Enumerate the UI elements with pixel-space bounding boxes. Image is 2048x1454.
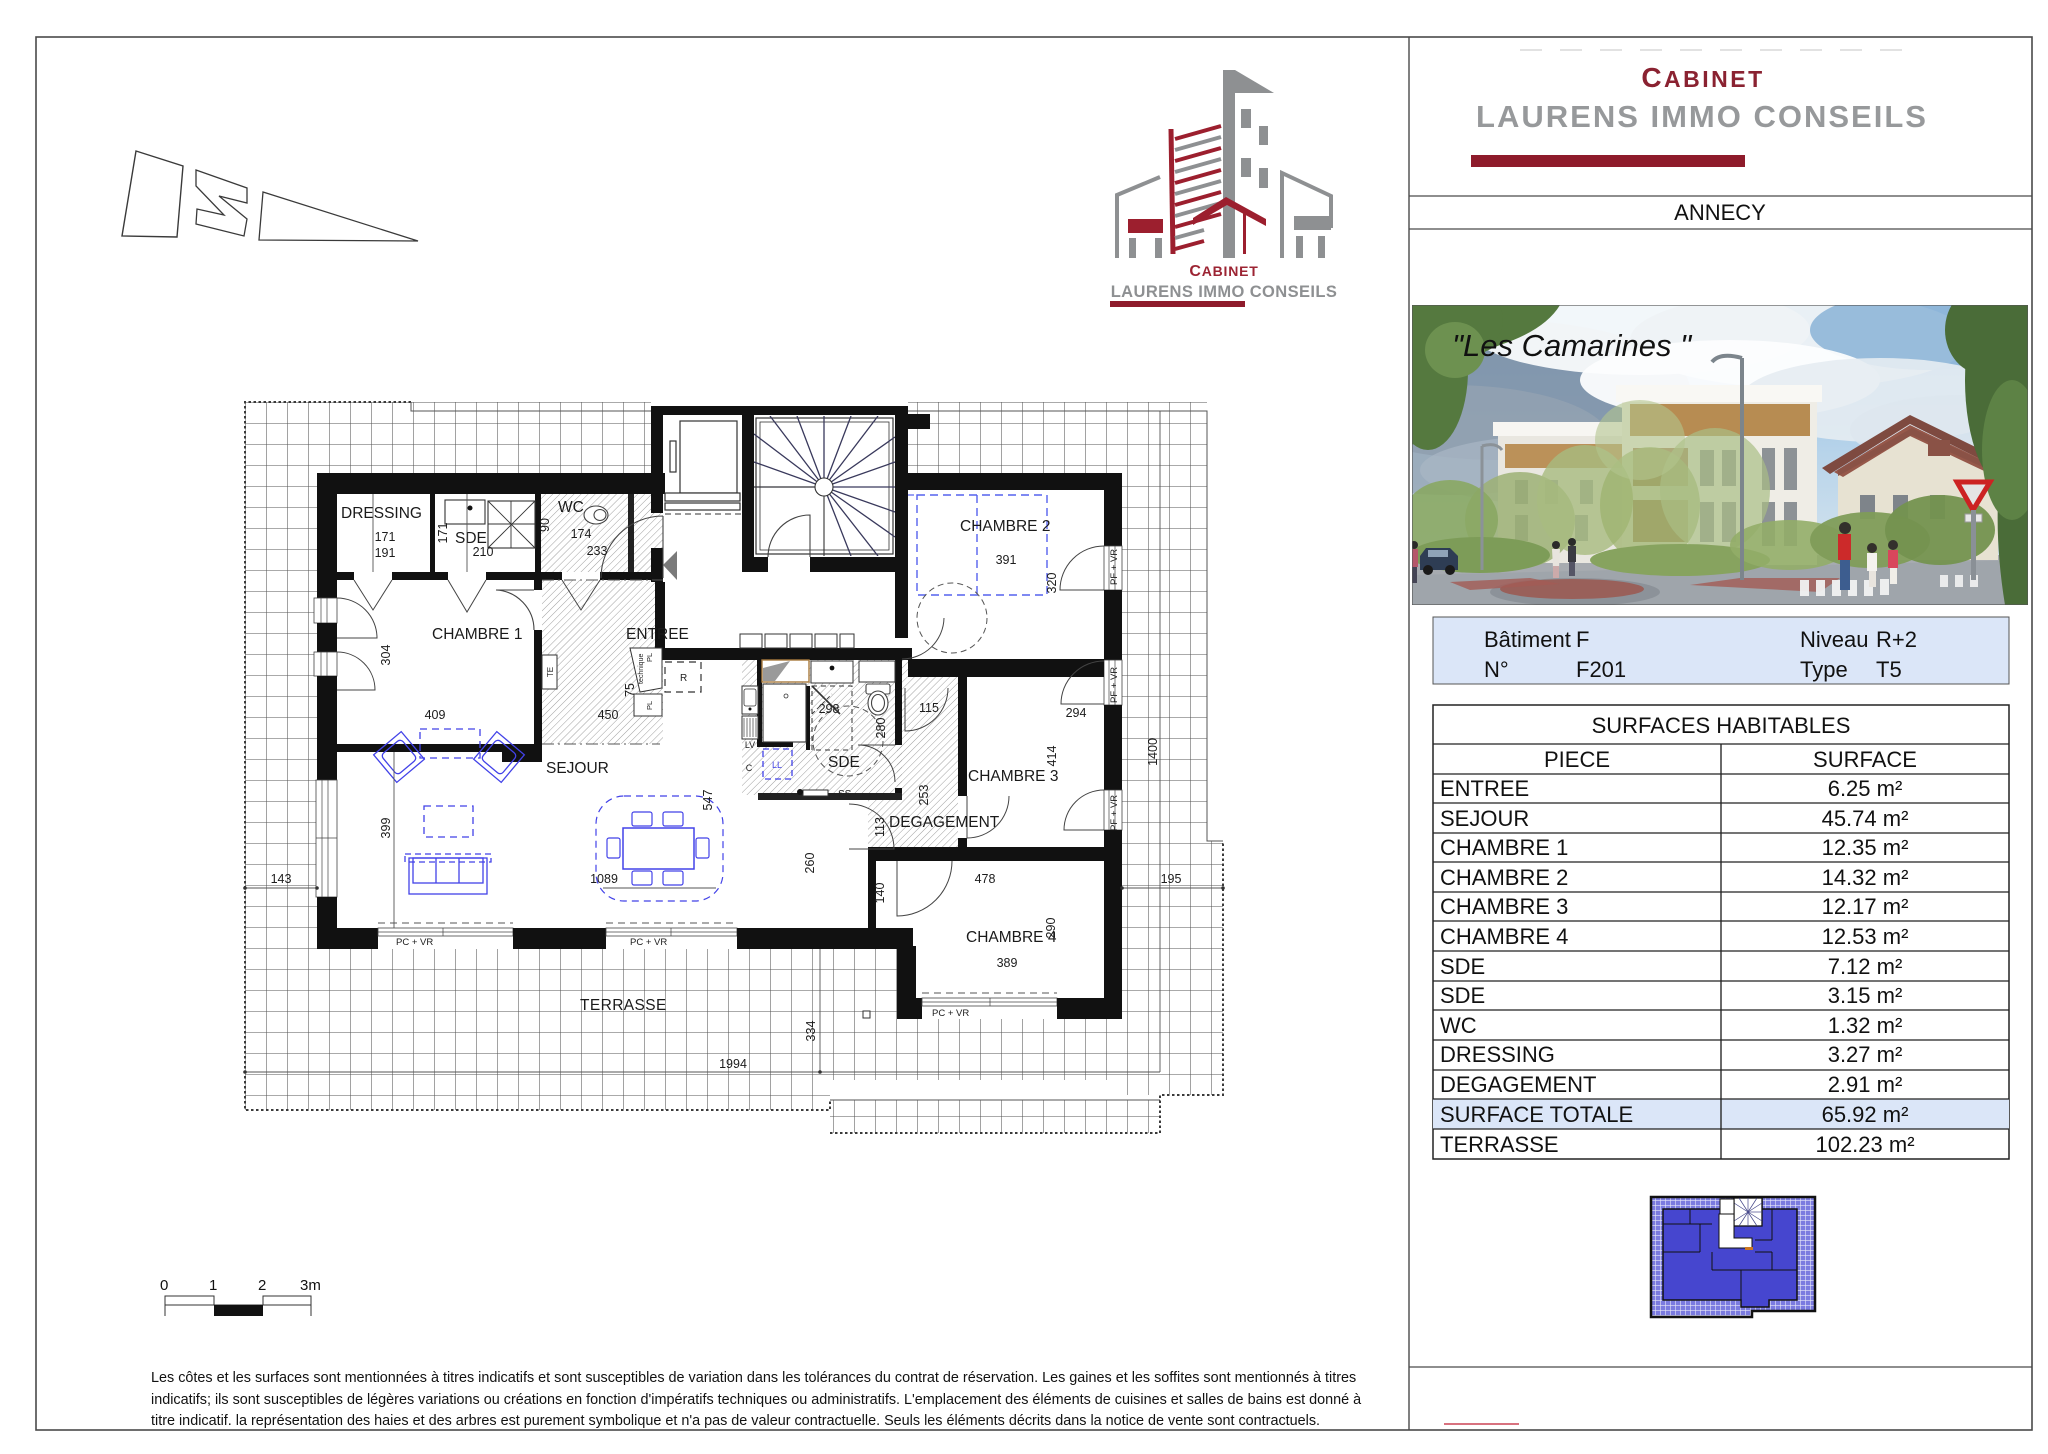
svg-text:SDE: SDE (1440, 954, 1485, 979)
svg-text:1.32 m²: 1.32 m² (1828, 1013, 1903, 1038)
svg-text:294: 294 (1066, 706, 1087, 720)
svg-text:PF + VR: PF + VR (1109, 667, 1120, 703)
svg-text:Les côtes et les surfaces sont: Les côtes et les surfaces sont mentionné… (151, 1370, 1356, 1386)
svg-text:"Les Camarines ": "Les Camarines " (1452, 328, 1693, 363)
svg-text:414: 414 (1045, 746, 1059, 767)
svg-text:1: 1 (209, 1277, 217, 1294)
svg-text:90: 90 (538, 518, 552, 532)
svg-text:260: 260 (803, 853, 817, 874)
svg-text:LAURENS IMMO CONSEILS: LAURENS IMMO CONSEILS (1111, 283, 1338, 301)
svg-text:LAURENS IMMO CONSEILS: LAURENS IMMO CONSEILS (1476, 99, 1928, 134)
svg-text:CHAMBRE 4: CHAMBRE 4 (1440, 924, 1568, 949)
svg-text:WC: WC (1440, 1013, 1477, 1038)
svg-text:TERRASSE: TERRASSE (1440, 1132, 1559, 1157)
svg-text:320: 320 (1045, 573, 1059, 594)
svg-text:12.53 m²: 12.53 m² (1822, 924, 1909, 949)
svg-text:PC + VR: PC + VR (396, 937, 433, 948)
svg-text:DRESSING: DRESSING (341, 505, 422, 522)
svg-text:PC + VR: PC + VR (630, 937, 667, 948)
svg-text:280: 280 (874, 718, 888, 739)
svg-text:253: 253 (917, 785, 931, 806)
svg-text:WC: WC (558, 499, 584, 516)
svg-text:113: 113 (873, 817, 887, 837)
svg-text:F: F (1576, 627, 1589, 652)
svg-text:titre indicatif. la représenta: titre indicatif. la représentation des h… (151, 1413, 1320, 1429)
svg-text:CHAMBRE 2: CHAMBRE 2 (960, 518, 1050, 535)
svg-text:1400: 1400 (1146, 738, 1160, 766)
svg-text:ANNECY: ANNECY (1674, 200, 1766, 225)
svg-text:1089: 1089 (590, 872, 618, 886)
svg-text:SURFACES HABITABLES: SURFACES HABITABLES (1592, 713, 1851, 738)
svg-text:45.74 m²: 45.74 m² (1822, 806, 1909, 831)
svg-text:ENTREE: ENTREE (1440, 776, 1529, 801)
svg-text:1994: 1994 (719, 1057, 747, 1071)
svg-text:PF + VR: PF + VR (1109, 549, 1120, 585)
svg-text:304: 304 (379, 645, 393, 666)
svg-text:389: 389 (997, 956, 1018, 970)
svg-text:SDE: SDE (1440, 983, 1485, 1008)
svg-text:SURFACE: SURFACE (1813, 747, 1917, 772)
svg-text:ENTREE: ENTREE (626, 626, 689, 643)
svg-text:399: 399 (379, 818, 393, 839)
svg-text:65.92 m²: 65.92 m² (1822, 1102, 1909, 1127)
svg-text:298: 298 (819, 702, 840, 716)
svg-text:SDE: SDE (828, 754, 860, 771)
svg-text:75: 75 (623, 683, 637, 697)
svg-text:409: 409 (425, 708, 446, 722)
svg-text:6.25 m²: 6.25 m² (1828, 776, 1903, 801)
svg-text:SS: SS (838, 789, 852, 800)
svg-text:3.15 m²: 3.15 m² (1828, 983, 1903, 1008)
svg-text:F201: F201 (1576, 657, 1626, 682)
svg-text:DEGAGEMENT: DEGAGEMENT (889, 814, 1000, 831)
svg-text:PL: PL (645, 701, 654, 710)
svg-text:140: 140 (873, 883, 887, 904)
svg-text:3m: 3m (300, 1277, 321, 1294)
svg-text:191: 191 (375, 546, 396, 560)
svg-text:N°: N° (1484, 657, 1509, 682)
svg-text:2: 2 (258, 1277, 266, 1294)
svg-text:SEJOUR: SEJOUR (1440, 806, 1529, 831)
svg-text:TE: TE (546, 667, 555, 677)
svg-text:174: 174 (571, 527, 592, 541)
svg-text:391: 391 (996, 553, 1017, 567)
svg-text:indicatifs; ils sont susceptib: indicatifs; ils sont susceptibles de lég… (151, 1392, 1361, 1408)
svg-text:SEJOUR: SEJOUR (546, 760, 609, 777)
svg-text:334: 334 (804, 1021, 818, 1042)
svg-text:14.32 m²: 14.32 m² (1822, 865, 1909, 890)
svg-text:CHAMBRE 1: CHAMBRE 1 (432, 626, 522, 643)
svg-text:DEGAGEMENT: DEGAGEMENT (1440, 1072, 1596, 1097)
svg-text:171: 171 (436, 523, 450, 544)
svg-text:PF + VR: PF + VR (1109, 795, 1120, 831)
svg-text:CHAMBRE 3: CHAMBRE 3 (968, 768, 1058, 785)
svg-text:DRESSING: DRESSING (1440, 1042, 1555, 1067)
svg-text:CHAMBRE 2: CHAMBRE 2 (1440, 865, 1568, 890)
svg-text:Bâtiment: Bâtiment (1484, 627, 1571, 652)
svg-text:technique: technique (638, 654, 645, 684)
svg-text:195: 195 (1161, 872, 1182, 886)
svg-text:PIECE: PIECE (1544, 747, 1610, 772)
svg-text:7.12 m²: 7.12 m² (1828, 954, 1903, 979)
svg-text:PC + VR: PC + VR (932, 1008, 969, 1019)
svg-text:SURFACE TOTALE: SURFACE TOTALE (1440, 1102, 1633, 1127)
svg-text:450: 450 (598, 708, 619, 722)
svg-text:210: 210 (473, 545, 494, 559)
svg-text:171: 171 (375, 530, 396, 544)
svg-text:Type: Type (1800, 657, 1848, 682)
svg-text:12.35 m²: 12.35 m² (1822, 835, 1909, 860)
svg-text:CHAMBRE 3: CHAMBRE 3 (1440, 894, 1568, 919)
svg-text:478: 478 (975, 872, 996, 886)
svg-text:12.17 m²: 12.17 m² (1822, 894, 1909, 919)
svg-text:LV: LV (745, 740, 755, 750)
svg-text:CABINET: CABINET (1641, 62, 1764, 93)
svg-text:C: C (746, 763, 753, 773)
svg-text:115: 115 (919, 701, 939, 715)
svg-text:R+2: R+2 (1876, 627, 1917, 652)
svg-text:T5: T5 (1876, 657, 1902, 682)
svg-text:R: R (680, 673, 687, 684)
svg-text:CABINET: CABINET (1189, 263, 1258, 280)
svg-text:TERRASSE: TERRASSE (580, 997, 667, 1014)
svg-text:PL: PL (645, 653, 654, 662)
svg-text:233: 233 (587, 544, 608, 558)
svg-text:290: 290 (1044, 918, 1058, 939)
svg-text:0: 0 (160, 1277, 168, 1294)
svg-text:3.27 m²: 3.27 m² (1828, 1042, 1903, 1067)
svg-text:143: 143 (271, 872, 292, 886)
svg-text:2.91 m²: 2.91 m² (1828, 1072, 1903, 1097)
svg-text:LL: LL (772, 760, 782, 770)
svg-text:547: 547 (701, 790, 715, 811)
svg-text:102.23 m²: 102.23 m² (1815, 1132, 1914, 1157)
svg-text:CHAMBRE 1: CHAMBRE 1 (1440, 835, 1568, 860)
svg-text:Niveau: Niveau (1800, 627, 1868, 652)
